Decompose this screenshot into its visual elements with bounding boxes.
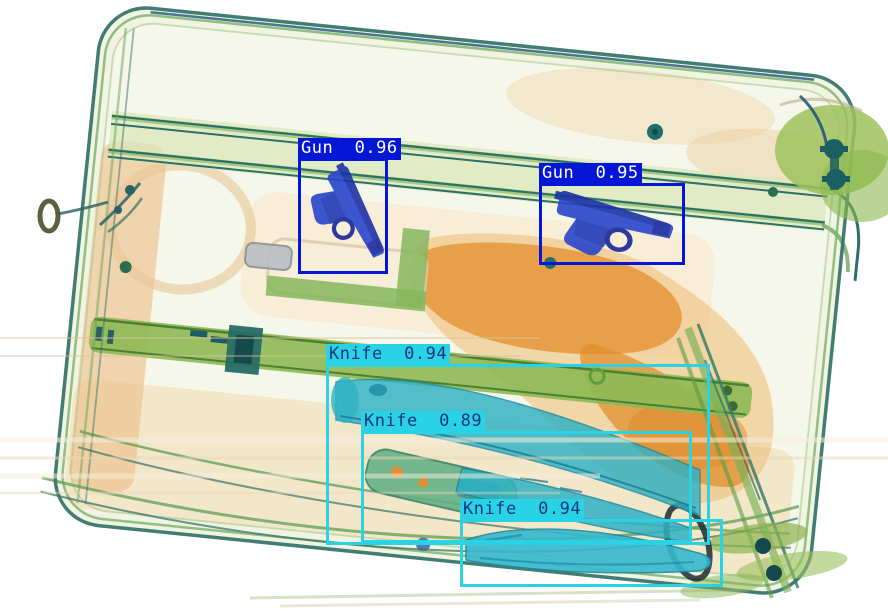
xray-scan: Gun 0.96Gun 0.95Knife 0.94Knife 0.89Knif…	[0, 0, 888, 612]
latch	[244, 242, 292, 271]
xray-scan-image	[0, 0, 888, 612]
